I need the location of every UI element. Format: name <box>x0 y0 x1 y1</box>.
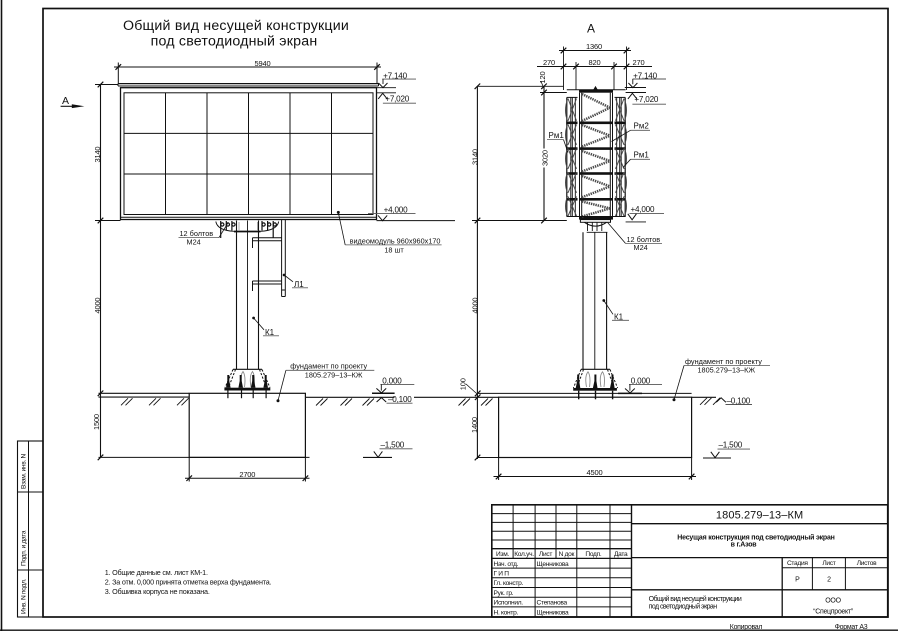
svg-text:1500: 1500 <box>92 414 101 430</box>
svg-text:А: А <box>62 95 69 107</box>
svg-text:Копировал: Копировал <box>730 624 763 631</box>
svg-text:–0,100: –0,100 <box>388 395 412 404</box>
svg-text:120: 120 <box>538 72 547 84</box>
svg-text:4500: 4500 <box>587 468 603 477</box>
svg-text:Р: Р <box>795 577 800 584</box>
svg-text:Н. контр.: Н. контр. <box>494 609 519 616</box>
svg-text:1. Общие данные см. лист КМ-1.: 1. Общие данные см. лист КМ-1. <box>105 568 208 577</box>
svg-text:Рм1: Рм1 <box>634 151 650 160</box>
svg-text:+7,020: +7,020 <box>634 95 658 104</box>
svg-text:4000: 4000 <box>93 298 102 314</box>
svg-text:1805.279–13–КМ: 1805.279–13–КМ <box>716 510 803 522</box>
svg-text:Кол.уч.: Кол.уч. <box>514 551 534 558</box>
svg-text:Щенникова: Щенникова <box>537 609 569 616</box>
svg-text:Лист: Лист <box>822 560 835 567</box>
svg-text:под светодиодный экран: под светодиодный экран <box>649 603 718 611</box>
svg-text:Степанова: Степанова <box>537 600 568 607</box>
svg-text:ООО: ООО <box>825 597 841 604</box>
svg-text:фундамент по проекту: фундамент по проекту <box>290 361 367 370</box>
svg-text:видеомодуль 960х960х170: видеомодуль 960х960х170 <box>350 236 441 245</box>
svg-text:3140: 3140 <box>471 149 480 165</box>
svg-text:Нач. отд.: Нач. отд. <box>494 561 519 568</box>
svg-text:Гл. констр.: Гл. констр. <box>494 580 524 587</box>
svg-text:Л1: Л1 <box>294 280 304 289</box>
svg-text:Несущая конструкция под светод: Несущая конструкция под светодиодный экр… <box>677 533 834 541</box>
svg-text:Г И П: Г И П <box>494 571 510 578</box>
svg-text:2. За отм. 0,000 принята отмет: 2. За отм. 0,000 принята отметка верха ф… <box>105 577 272 586</box>
svg-text:2700: 2700 <box>239 470 255 479</box>
svg-text:М24: М24 <box>634 243 648 252</box>
svg-text:Общий вид несущей конструкции: Общий вид несущей конструкции <box>123 18 349 34</box>
svg-text:3. Обшивка корпуса не показана: 3. Обшивка корпуса не показана. <box>105 587 210 596</box>
svg-text:1805.279–13–КЖ: 1805.279–13–КЖ <box>698 366 756 375</box>
svg-text:Инв. N подл.: Инв. N подл. <box>21 578 28 614</box>
svg-text:+4,000: +4,000 <box>631 205 655 214</box>
svg-text:Формат А3: Формат А3 <box>835 624 868 631</box>
svg-text:Щенникова: Щенникова <box>537 561 569 568</box>
svg-text:–1,500: –1,500 <box>381 440 405 449</box>
svg-text:Подп.: Подп. <box>585 551 601 558</box>
svg-text:–1,500: –1,500 <box>719 441 743 450</box>
svg-text:3020: 3020 <box>540 150 549 166</box>
svg-text:под светодиодный экран: под светодиодный экран <box>151 34 318 50</box>
svg-text:1805.279–13–КЖ: 1805.279–13–КЖ <box>305 371 363 380</box>
svg-text:Рук. гр.: Рук. гр. <box>494 590 514 597</box>
svg-text:в г.Азов: в г.Азов <box>731 542 758 549</box>
svg-text:К1: К1 <box>265 328 275 337</box>
svg-text:К1: К1 <box>614 312 624 321</box>
svg-text:2: 2 <box>827 577 831 584</box>
svg-text:Общий вид несущей конструкции: Общий вид несущей конструкции <box>649 595 742 603</box>
svg-text:270: 270 <box>633 58 645 67</box>
svg-text:Стадия: Стадия <box>787 560 808 567</box>
svg-text:N док: N док <box>559 551 575 558</box>
svg-text:А: А <box>587 22 595 36</box>
svg-text:5940: 5940 <box>255 59 271 68</box>
svg-text:Рм1: Рм1 <box>549 131 565 140</box>
svg-text:Лист: Лист <box>539 551 552 558</box>
svg-text:“Спецпроект”: “Спецпроект” <box>813 608 854 615</box>
svg-text:1360: 1360 <box>586 42 602 51</box>
svg-text:4000: 4000 <box>470 298 479 314</box>
svg-text:–0,100: –0,100 <box>727 397 751 406</box>
svg-text:Листов: Листов <box>857 560 877 567</box>
svg-text:18 шт: 18 шт <box>384 246 404 255</box>
svg-text:1400: 1400 <box>470 417 479 433</box>
svg-text:Изм.: Изм. <box>496 551 509 558</box>
svg-text:+7,020: +7,020 <box>385 95 409 104</box>
svg-text:Рм2: Рм2 <box>634 122 650 131</box>
svg-text:Подп. и дата: Подп. и дата <box>21 530 28 566</box>
svg-text:М24: М24 <box>187 238 201 247</box>
svg-text:Дата: Дата <box>614 551 628 558</box>
svg-text:Исполнил.: Исполнил. <box>494 600 524 607</box>
svg-text:270: 270 <box>543 58 555 67</box>
svg-text:3140: 3140 <box>93 147 102 163</box>
svg-text:Взам. инв. N: Взам. инв. N <box>21 454 28 489</box>
svg-text:820: 820 <box>589 58 601 67</box>
